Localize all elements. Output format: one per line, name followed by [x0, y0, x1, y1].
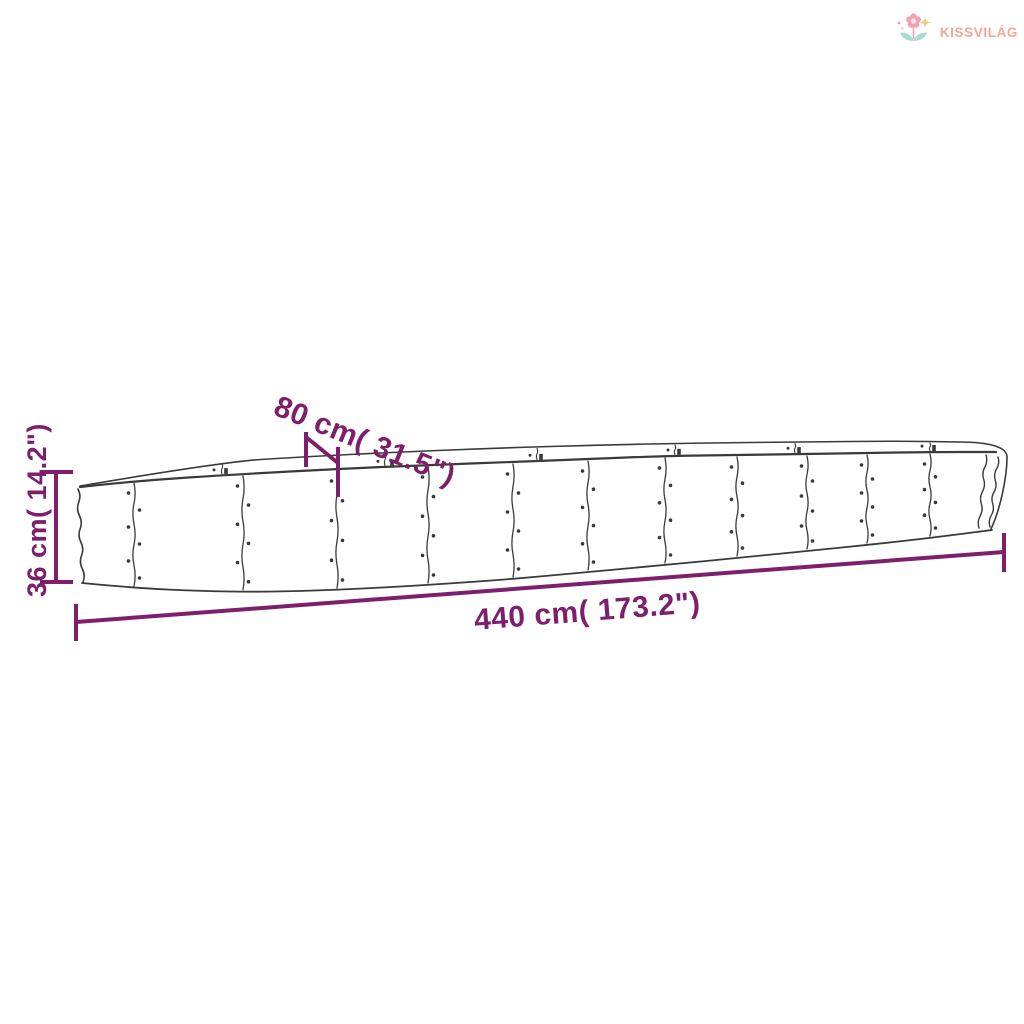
rivet-dot: [741, 514, 745, 518]
rivet-dot: [658, 466, 662, 470]
rivet-dot: [669, 553, 673, 557]
rivet-dot: [871, 477, 875, 481]
width-dimension-label: 80 cm( 31.5"): [269, 390, 460, 493]
rivet-dot: [138, 542, 142, 546]
rivet-dot: [236, 484, 240, 488]
rivet-dot: [658, 501, 662, 505]
rivet-dot: [934, 526, 938, 530]
product-dimension-image: KISSVILÁG 36 cm( 14.2") 80 cm( 31.5"): [0, 0, 1024, 1024]
rivet-dot: [592, 524, 596, 528]
bottom-edge: [82, 530, 992, 592]
rivet-dot: [127, 559, 131, 563]
far-wall-seam: [929, 443, 930, 450]
rivet-dot: [236, 523, 240, 527]
panel-seam: [866, 455, 868, 543]
rivet-dot: [730, 498, 734, 502]
rivet-dot: [730, 530, 734, 534]
rivet-dot: [592, 560, 596, 564]
rivet-dot: [330, 558, 334, 562]
rim-clip: [677, 449, 681, 455]
left-end-corrugation: [78, 489, 85, 582]
rivet-dot: [860, 463, 864, 467]
dimension-annotations: 36 cm( 14.2") 80 cm( 31.5") 440 cm( 173.…: [22, 390, 1004, 641]
far-rim-edge: [80, 441, 958, 486]
panel-seam: [242, 476, 244, 590]
far-wall-seam: [536, 448, 537, 459]
rivet-dot: [923, 462, 927, 466]
right-end-corrugation: [978, 455, 987, 528]
rivet-dot: [127, 525, 131, 529]
rivet-dot: [517, 491, 521, 495]
rivet-dot: [341, 539, 345, 543]
rivet-dot: [247, 503, 251, 507]
rivet-dot: [341, 499, 345, 503]
rivet-dot: [923, 488, 927, 492]
rivet-dot: [923, 513, 927, 517]
panel-seam: [929, 454, 931, 536]
rivet-dot: [506, 510, 510, 514]
rim-rivet-dot: [921, 445, 924, 448]
right-end-corrugation: [989, 457, 998, 527]
rivet-dot: [581, 542, 585, 546]
height-dimension-label: 36 cm( 14.2"): [22, 423, 52, 597]
rivet-dot: [800, 524, 804, 528]
rivet-dot: [741, 481, 745, 485]
panel-seam: [736, 457, 738, 556]
rivet-dot: [517, 567, 521, 571]
rivet-dot: [934, 475, 938, 479]
far-wall-seam: [794, 444, 795, 453]
rivet-dot: [811, 479, 815, 483]
front-rim-edge: [80, 452, 996, 487]
rivet-dot: [341, 578, 345, 582]
rivet-dot: [581, 506, 585, 510]
rim-rivet-dot: [667, 449, 670, 452]
rivet-dot: [506, 548, 510, 552]
length-dimension: 440 cm( 173.2"): [76, 533, 1004, 641]
rivet-dot: [432, 534, 436, 538]
rivet-dot: [330, 479, 334, 483]
width-dimension: 80 cm( 31.5"): [269, 390, 460, 497]
rim-rivet-dot: [213, 468, 216, 471]
rim-rivet-dot: [787, 447, 790, 450]
rim-clip: [797, 447, 801, 453]
rivet-dot: [247, 542, 251, 546]
rivet-dot: [506, 472, 510, 476]
panel-seam: [512, 464, 514, 577]
rivet-dot: [800, 464, 804, 468]
rivet-dot: [811, 509, 815, 513]
rivet-dot: [127, 491, 131, 495]
rivet-dot: [432, 495, 436, 499]
rivet-dot: [800, 494, 804, 498]
rim-rivet-dot: [529, 454, 532, 457]
rivet-dot: [421, 514, 425, 518]
rim-clip: [224, 468, 228, 474]
panel-seam: [587, 461, 589, 570]
rivet-dot: [138, 508, 142, 512]
rivet-dot: [247, 580, 251, 584]
panel-seam: [664, 458, 666, 563]
rivet-dot: [934, 501, 938, 505]
dimension-diagram: 36 cm( 14.2") 80 cm( 31.5") 440 cm( 173.…: [0, 0, 1024, 1024]
rivet-dot: [592, 487, 596, 491]
panel-seam: [806, 456, 808, 549]
rim-clip: [539, 454, 543, 460]
rivet-dot: [236, 561, 240, 565]
rivet-dot: [581, 469, 585, 473]
panel-seam: [133, 483, 135, 586]
rivet-dot: [330, 519, 334, 523]
planter-drawing: [78, 441, 1007, 591]
rivet-dot: [871, 505, 875, 509]
rivet-dot: [421, 554, 425, 558]
length-dimension-label: 440 cm( 173.2"): [473, 586, 702, 637]
rivet-dot: [517, 529, 521, 533]
rivet-dot: [658, 536, 662, 540]
rivet-dot: [432, 573, 436, 577]
rivet-dot: [871, 533, 875, 537]
rim-clip: [932, 445, 936, 451]
rivet-dot: [730, 465, 734, 469]
rivet-dot: [811, 539, 815, 543]
rivet-dot: [860, 491, 864, 495]
rivet-dot: [669, 484, 673, 488]
right-end-outline: [958, 442, 1007, 529]
height-dimension: 36 cm( 14.2"): [22, 423, 73, 597]
rivet-dot: [741, 546, 745, 550]
rivet-dot: [669, 518, 673, 522]
far-wall-seam: [221, 464, 222, 474]
rivet-dot: [138, 576, 142, 580]
far-wall-seam: [674, 445, 675, 454]
rivet-dot: [860, 519, 864, 523]
